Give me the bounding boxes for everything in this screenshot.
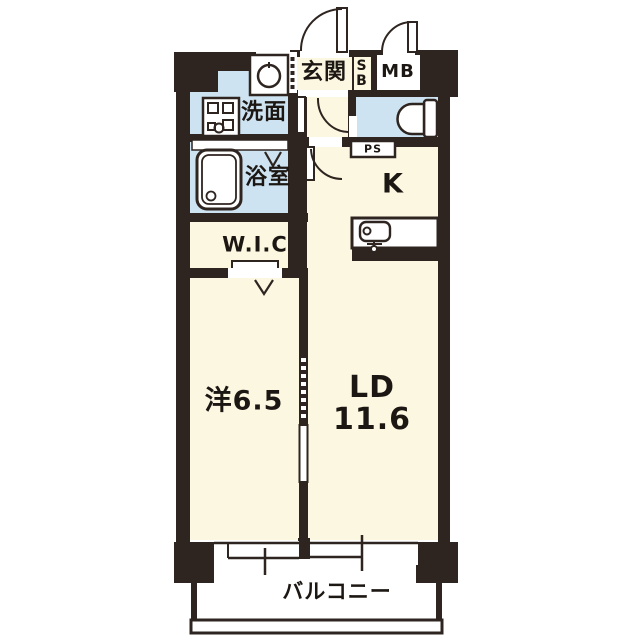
- meter-box-door: [382, 22, 417, 52]
- hall-door-leaf: [297, 97, 305, 133]
- label-shoe-box-b: B: [356, 74, 368, 88]
- wall-right: [438, 52, 450, 543]
- label-walk-in-closet: W.I.C: [222, 235, 288, 256]
- label-shoe-box-s: S: [356, 59, 367, 73]
- floor-plan-image: 玄関 S B MB 洗面 浴室 W.I.C K PS 洋6.5 LD 11.6 …: [0, 0, 640, 640]
- label-kitchen: K: [382, 171, 404, 198]
- kitchen-door-leaf: [306, 147, 314, 180]
- wall-bathroom-wic: [176, 213, 308, 222]
- entrance-door: [301, 8, 347, 52]
- sliding-door-leaf: [300, 425, 308, 482]
- label-balcony: バルコニー: [282, 582, 392, 603]
- label-pipe-space: PS: [364, 144, 382, 155]
- wic-doorway-opening: [228, 268, 282, 278]
- label-washroom: 洗面: [241, 102, 287, 124]
- toilet-icon: [398, 100, 437, 137]
- kitchen-living-floor: [307, 93, 438, 540]
- balcony-rail: [191, 620, 442, 633]
- label-living-dining-size: 11.6: [333, 405, 411, 435]
- pillar-bottom-left: [174, 542, 214, 583]
- sliding-window-icon: [310, 535, 418, 571]
- hall-doorway-sill: [298, 90, 348, 97]
- label-living-dining: LD: [349, 373, 395, 403]
- counter-base-wall: [352, 248, 450, 261]
- meter-box-door-leaf: [408, 22, 417, 52]
- floor-plan-drawing: [0, 0, 640, 640]
- door-swing-arc-icon: [301, 9, 342, 51]
- washing-machine-icon: [250, 55, 288, 95]
- sliding-window-icon: [214, 541, 299, 575]
- bathroom-door-track: [192, 140, 288, 150]
- wic-door-leaf: [232, 261, 278, 269]
- vanity-icon: [203, 98, 239, 136]
- kitchen-counter: [352, 218, 450, 261]
- pillar-bottom-right: [416, 542, 458, 583]
- wall-left: [176, 52, 190, 543]
- kitchen-doorway-opening: [309, 137, 342, 147]
- label-meter-box: MB: [381, 63, 415, 81]
- label-bathroom: 浴室: [245, 167, 291, 189]
- label-entrance: 玄関: [301, 62, 347, 84]
- bathtub-icon: [197, 150, 241, 209]
- wall-bottom-middle-stub: [298, 538, 310, 559]
- label-western-room: 洋6.5: [205, 388, 284, 415]
- toilet-door: [349, 116, 357, 137]
- entrance-door-leaf: [337, 8, 347, 52]
